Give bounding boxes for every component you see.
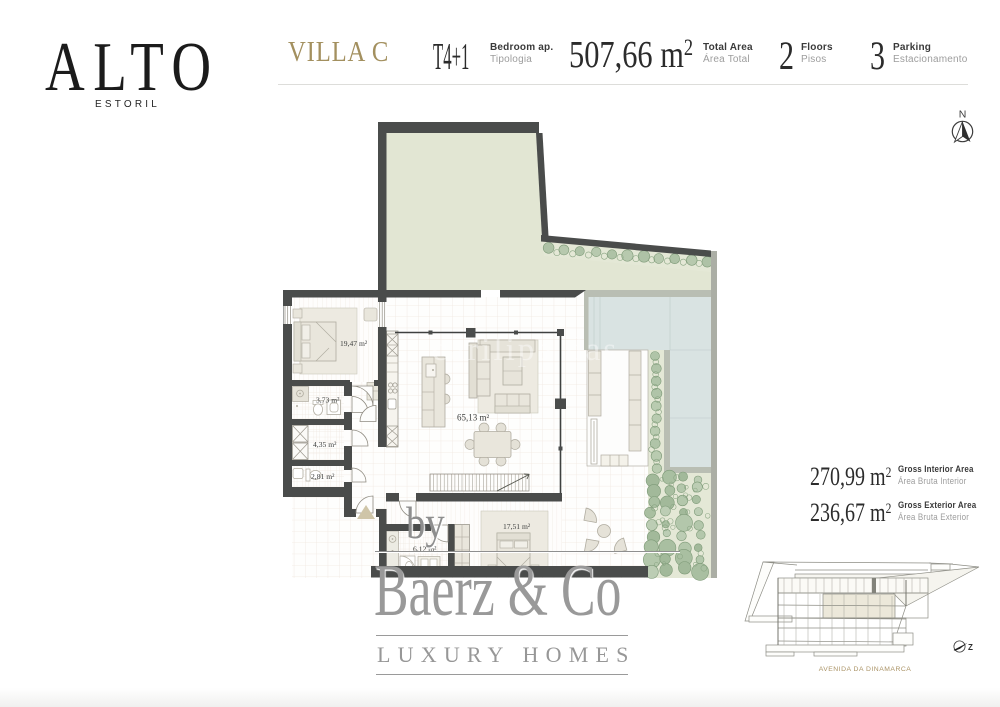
svg-text:65,13 m²: 65,13 m² — [457, 413, 490, 423]
svg-text:Z: Z — [968, 643, 973, 652]
svg-text:AVENIDA DA DINAMARCA: AVENIDA DA DINAMARCA — [819, 666, 912, 673]
svg-text:19,47 m²: 19,47 m² — [340, 339, 368, 348]
svg-text:4,35 m²: 4,35 m² — [313, 440, 337, 449]
svg-text:2,81 m²: 2,81 m² — [311, 472, 335, 481]
svg-text:carilipa das: carilipa das — [432, 332, 619, 368]
svg-text:N: N — [959, 109, 967, 121]
svg-text:17,51 m²: 17,51 m² — [503, 522, 531, 531]
svg-text:3,73 m²: 3,73 m² — [316, 396, 340, 405]
